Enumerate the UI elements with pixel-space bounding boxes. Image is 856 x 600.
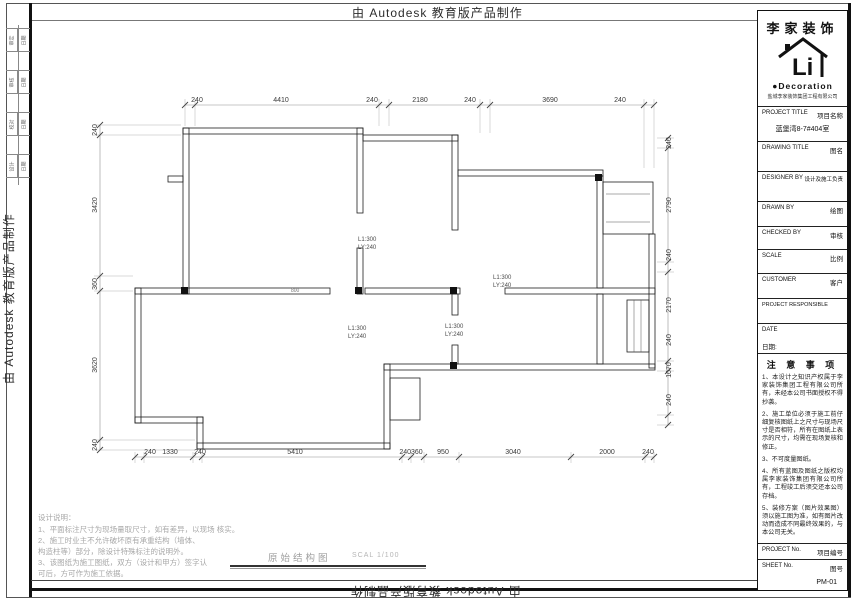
wall-lines bbox=[135, 128, 655, 449]
project-no-row: PROJECT No. 项目编号 bbox=[758, 543, 847, 559]
svg-text:3420: 3420 bbox=[92, 197, 99, 213]
svg-text:LY:240: LY:240 bbox=[348, 334, 367, 340]
checked-by-label-cn: 审核 bbox=[830, 230, 843, 240]
svg-text:240: 240 bbox=[92, 124, 99, 136]
title-block: 李家装饰 Li ●Decoration 盐城李家装饰集团工程有限公司 PROJE… bbox=[757, 10, 848, 591]
svg-text:360: 360 bbox=[92, 278, 99, 290]
drawing-sheet: 由 Autodesk 教育版产品制作 由 Autodesk 教育版产品制作 由 … bbox=[0, 0, 856, 600]
drawn-by-row: DRAWN BY 绘图 bbox=[758, 201, 847, 226]
drawn-by-label-cn: 绘图 bbox=[830, 205, 843, 215]
project-title-label-en: PROJECT TITLE bbox=[762, 110, 808, 120]
svg-text:240: 240 bbox=[666, 137, 673, 149]
date-label-cn: 日期: bbox=[762, 344, 777, 351]
window-lines bbox=[606, 194, 650, 352]
svg-text:L1:300: L1:300 bbox=[493, 275, 512, 281]
design-notes-title: 设计说明： bbox=[38, 512, 278, 523]
design-note-line: 可后，方可作为施工依据。 bbox=[38, 568, 278, 579]
svg-text:240: 240 bbox=[92, 439, 99, 451]
designer-row: DESIGNER BY 设计及施工负责 bbox=[758, 171, 847, 201]
date-row: DATE 日期: bbox=[758, 323, 847, 353]
drawing-title-label-en: DRAWING TITLE bbox=[762, 145, 809, 155]
project-no-label-en: PROJECT No. bbox=[762, 547, 801, 557]
note-item: 5、装修方案（图片效果图）须以施工图为准，如有图片改动而造成不同最终效果的，与本… bbox=[762, 505, 843, 538]
svg-text:240: 240 bbox=[666, 394, 673, 406]
svg-text:LY:240: LY:240 bbox=[493, 283, 512, 289]
sheet-no-label-cn: 图号 bbox=[830, 563, 843, 573]
svg-text:240: 240 bbox=[642, 449, 654, 456]
notes-title: 注 意 事 项 bbox=[758, 358, 847, 371]
checked-by-row: CHECKED BY 审核 bbox=[758, 226, 847, 249]
svg-text:3620: 3620 bbox=[92, 357, 99, 373]
svg-text:2170: 2170 bbox=[666, 297, 673, 313]
beam-labels: L1:300 LY:240 L1:300 LY:240 L1:300 LY:24… bbox=[348, 237, 512, 340]
svg-text:240: 240 bbox=[614, 97, 626, 104]
svg-text:950: 950 bbox=[437, 449, 449, 456]
svg-text:5410: 5410 bbox=[287, 449, 303, 456]
scale-label-cn: 比例 bbox=[830, 253, 843, 263]
svg-text:LY:240: LY:240 bbox=[358, 245, 377, 251]
design-note-line: 构造柱等）部分，除设计特殊标注的说明外。 bbox=[38, 546, 278, 557]
svg-text:2790: 2790 bbox=[666, 197, 673, 213]
drawing-title-row: DRAWING TITLE 图名 bbox=[758, 141, 847, 171]
note-item: 3、不可度量图纸。 bbox=[762, 456, 843, 464]
floor-plan-drawing: 240 4410 240 2180 240 3690 240 240 1330 … bbox=[0, 0, 856, 600]
svg-text:L1:300: L1:300 bbox=[445, 324, 464, 330]
svg-text:L1:300: L1:300 bbox=[348, 326, 367, 332]
svg-text:240360: 240360 bbox=[399, 449, 422, 456]
logo-section: 李家装饰 Li ●Decoration 盐城李家装饰集团工程有限公司 bbox=[758, 11, 847, 106]
company-logo-icon: Li bbox=[776, 35, 830, 81]
plan-scale-note: SCAL 1/100 bbox=[352, 552, 400, 559]
project-title-label-cn: 项目名称 bbox=[817, 110, 843, 120]
design-note-line: 2、施工时业主不允许破坏原有承重结构（墙体、 bbox=[38, 535, 278, 546]
customer-label-en: CUSTOMER bbox=[762, 277, 796, 287]
dims-left: 240 3420 360 3620 240 bbox=[92, 124, 99, 451]
svg-text:240: 240 bbox=[666, 334, 673, 346]
svg-text:240: 240 bbox=[666, 249, 673, 261]
project-title-value: 蓝堡湾8-7#404室 bbox=[758, 124, 847, 134]
note-item: 2、施工单位必须于施工前仔细复核图纸上之尺寸与现场尺寸是否相符，所有在图纸上表示… bbox=[762, 411, 843, 452]
designer-label-cn: 设计及施工负责 bbox=[804, 175, 843, 183]
svg-text:2180: 2180 bbox=[412, 97, 428, 104]
logo-decoration-text: ●Decoration bbox=[758, 81, 847, 91]
column-blocks bbox=[181, 174, 602, 369]
dims-bottom: 240 1330 240 5410 240360 950 3040 2000 2… bbox=[144, 449, 654, 456]
wall-tag-label: 800 bbox=[291, 288, 300, 294]
company-name: 盐城李家装饰集团工程有限公司 bbox=[758, 93, 847, 100]
svg-text:LY:240: LY:240 bbox=[445, 332, 464, 338]
svg-text:1070: 1070 bbox=[666, 362, 673, 378]
design-note-line: 1、平面标注尺寸为现场量取尺寸，如有差异，以现场 核实。 bbox=[38, 524, 278, 535]
plan-title-underline-thin bbox=[230, 568, 426, 569]
responsible-row: PROJECT RESPONSIBLE bbox=[758, 298, 847, 323]
project-no-label-cn: 项目编号 bbox=[817, 547, 843, 557]
svg-text:240: 240 bbox=[191, 97, 203, 104]
svg-text:2000: 2000 bbox=[599, 449, 615, 456]
scale-row: SCALE 比例 bbox=[758, 249, 847, 273]
responsible-label-en: PROJECT RESPONSIBLE bbox=[762, 302, 828, 308]
drawn-by-label-en: DRAWN BY bbox=[762, 205, 794, 215]
svg-text:Li: Li bbox=[792, 54, 813, 81]
scale-label-en: SCALE bbox=[762, 253, 782, 263]
dims-right: 240 2790 240 2170 240 1070 240 bbox=[666, 137, 673, 406]
sheet-no-value: PM-01 bbox=[758, 573, 847, 586]
notes-section: 注 意 事 项 1、本设计之知识产权属于李家装饰集团工程有限公司所有，未经本公司… bbox=[758, 353, 847, 543]
customer-row: CUSTOMER 客户 bbox=[758, 273, 847, 298]
sheet-no-label-en: SHEET No. bbox=[762, 563, 793, 573]
checked-by-label-en: CHECKED BY bbox=[762, 230, 801, 240]
sheet-no-row: SHEET No. 图号 PM-01 bbox=[758, 559, 847, 590]
svg-text:1330: 1330 bbox=[162, 449, 178, 456]
svg-text:4410: 4410 bbox=[273, 97, 289, 104]
svg-text:3690: 3690 bbox=[542, 97, 558, 104]
note-item: 1、本设计之知识产权属于李家装饰集团工程有限公司所有，未经本公司书面授权不得抄袭… bbox=[762, 374, 843, 407]
svg-text:3040: 3040 bbox=[505, 449, 521, 456]
svg-text:240: 240 bbox=[366, 97, 378, 104]
date-label-en: DATE bbox=[762, 327, 778, 333]
plan-title: 原始结构图 bbox=[268, 550, 331, 564]
drawing-title-label-cn: 图名 bbox=[830, 145, 843, 155]
note-item: 4、所有蓝图及图纸之版权均属李家装饰集团有限公司所有，工程竣工后须交还本公司存档… bbox=[762, 468, 843, 501]
svg-text:L1:300: L1:300 bbox=[358, 237, 377, 243]
project-title-row: PROJECT TITLE 项目名称 蓝堡湾8-7#404室 bbox=[758, 106, 847, 141]
svg-text:240: 240 bbox=[464, 97, 476, 104]
plan-title-underline bbox=[230, 565, 426, 567]
dims-top: 240 4410 240 2180 240 3690 240 bbox=[191, 97, 626, 104]
svg-text:240: 240 bbox=[144, 449, 156, 456]
designer-label-en: DESIGNER BY bbox=[762, 175, 803, 183]
customer-label-cn: 客户 bbox=[830, 277, 843, 287]
svg-text:240: 240 bbox=[194, 449, 206, 456]
